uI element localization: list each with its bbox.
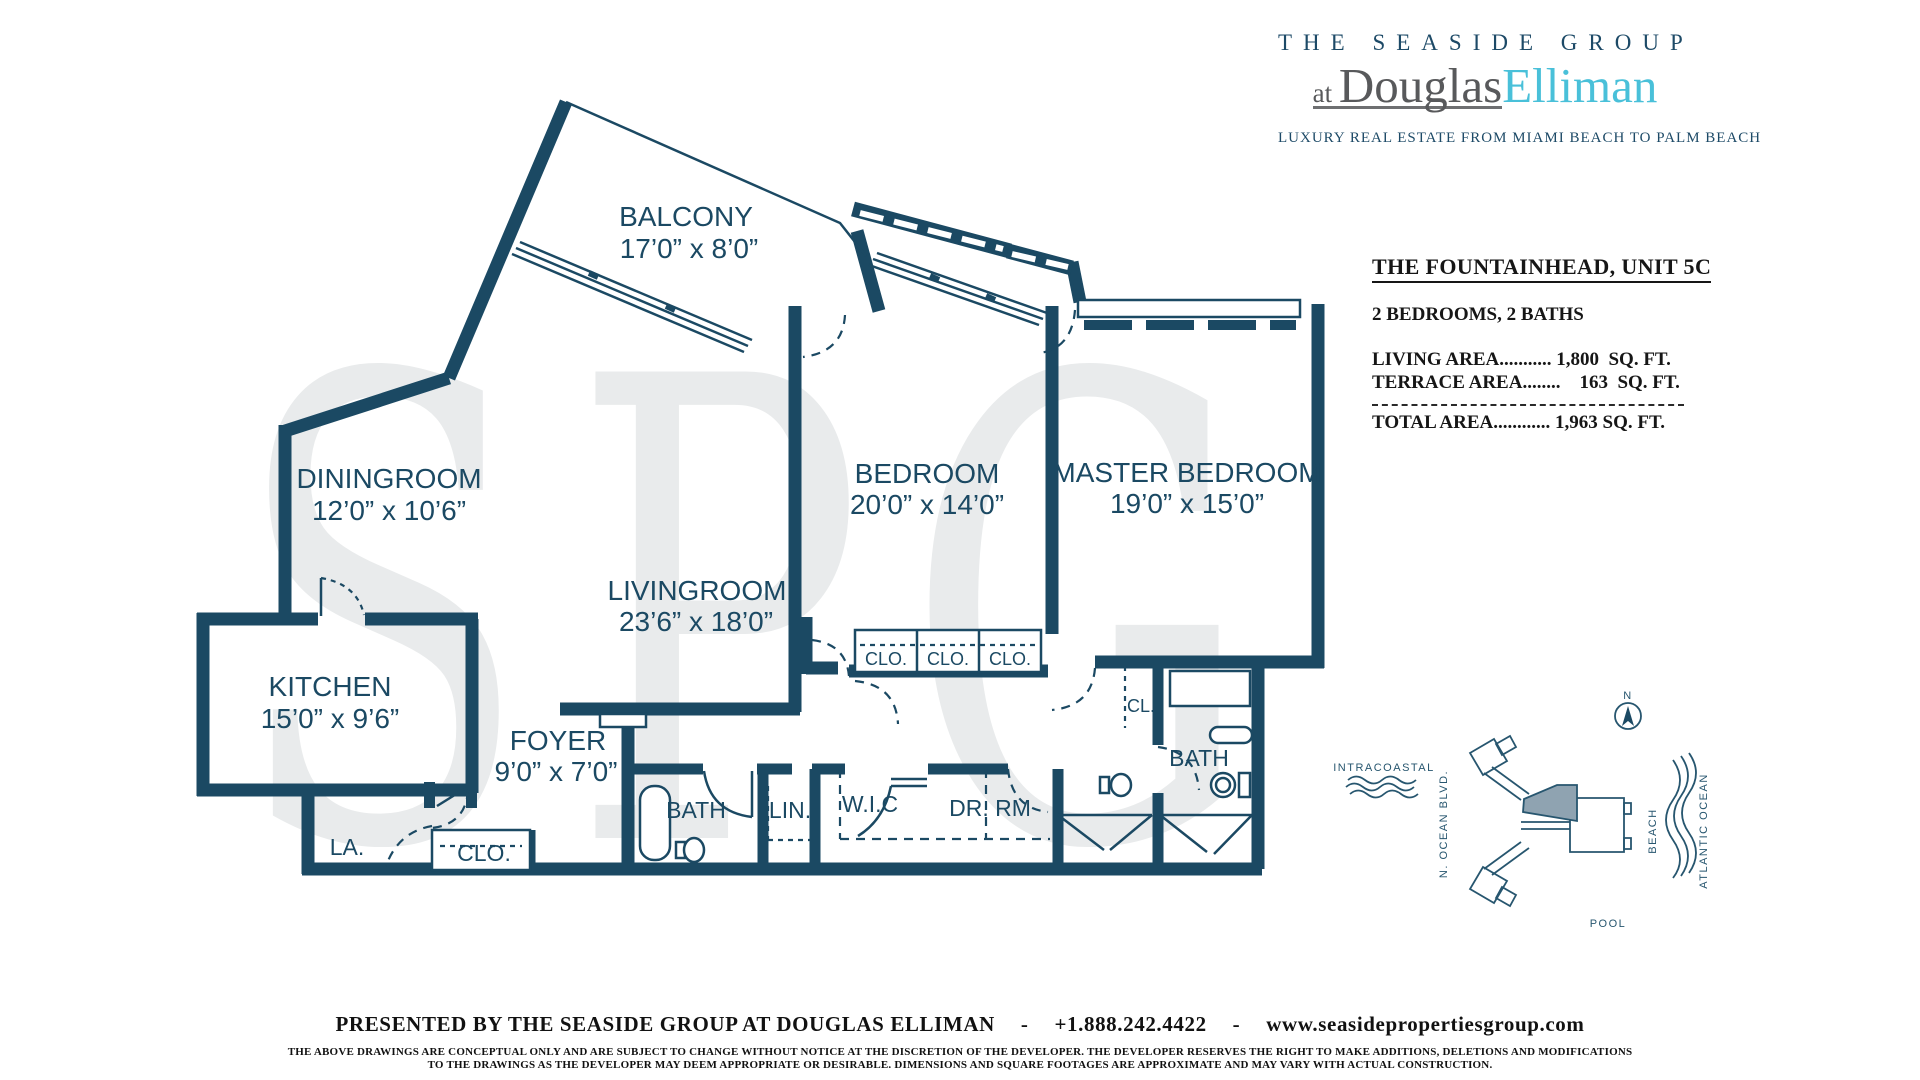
atlantic-ocean-label: ATLANTIC OCEAN (1698, 773, 1710, 889)
toilet-icon (1100, 777, 1109, 793)
highlighted-unit (1523, 785, 1577, 821)
separator: - (1021, 1012, 1029, 1036)
room-label-balcony: BALCONY (619, 201, 753, 232)
label-wic: W.I.C (842, 791, 898, 817)
wordmark-elliman: Elliman (1502, 58, 1657, 113)
terrace-area-line: TERRACE AREA........ 163 SQ. FT. (1372, 371, 1702, 394)
master-window-icon (1078, 300, 1300, 317)
room-label-bedroom: BEDROOM (855, 458, 1000, 489)
intracoastal-label: INTRACOASTAL (1333, 762, 1435, 774)
unit-title: THE FOUNTAINHEAD, UNIT 5C (1372, 254, 1702, 280)
brand-wordmark: at DouglasElliman (1278, 60, 1692, 124)
wordmark-douglas: Douglas (1339, 58, 1502, 113)
sink-icon (1210, 727, 1252, 743)
room-label-diningroom: DININGROOM (296, 463, 481, 494)
brand-tagline: LUXURY REAL ESTATE FROM MIAMI BEACH TO P… (1278, 130, 1692, 147)
shoreline-icon (1666, 760, 1680, 878)
label-clo-foyer: CLO. (457, 840, 511, 866)
unit-subtitle: 2 BEDROOMS, 2 BATHS (1372, 304, 1702, 326)
living-area-line: LIVING AREA........... 1,800 SQ. FT. (1372, 348, 1702, 371)
floor-plan: SPG (0, 0, 1920, 1080)
label-cl: CL. (1127, 696, 1155, 716)
room-label-kitchen: KITCHEN (269, 671, 392, 702)
waves-icon (1348, 777, 1416, 784)
site-map: N INTRACOASTAL N. OCEAN BLVD. BEACH ATLA… (1333, 690, 1710, 930)
room-dims-kitchen: 15’0” x 9’6” (261, 703, 400, 734)
label-clo1: CLO. (865, 649, 907, 669)
unit-info-panel: THE FOUNTAINHEAD, UNIT 5C 2 BEDROOMS, 2 … (1372, 254, 1702, 434)
building-footprint-icon (1470, 736, 1631, 906)
room-dims-balcony: 17’0” x 8’0” (620, 233, 759, 264)
label-clo2: CLO. (927, 649, 969, 669)
room-dims-master-bedroom: 19’0” x 15’0” (1110, 488, 1264, 519)
brand-logo: THE SEASIDE GROUP at DouglasElliman LUXU… (1278, 30, 1692, 147)
room-label-master-bedroom: MASTER BEDROOM (1052, 457, 1321, 488)
presented-by-text: PRESENTED BY THE SEASIDE GROUP AT DOUGLA… (336, 1012, 995, 1036)
disclaimer-line-1: THE ABOVE DRAWINGS ARE CONCEPTUAL ONLY A… (0, 1046, 1920, 1059)
label-bath1: BATH (666, 797, 726, 823)
label-clo3: CLO. (989, 649, 1031, 669)
room-label-foyer: FOYER (510, 725, 606, 756)
beach-label: BEACH (1647, 808, 1659, 853)
pool-label: POOL (1590, 918, 1627, 930)
room-dims-livingroom: 23’6” x 18’0” (619, 606, 773, 637)
north-label: N (1623, 690, 1632, 702)
room-dims-diningroom: 12’0” x 10’6” (312, 495, 466, 526)
label-bath2: BATH (1169, 745, 1229, 771)
disclaimer-line-2: TO THE DRAWINGS AS THE DEVELOPER MAY DEE… (0, 1059, 1920, 1072)
divider (1372, 404, 1684, 406)
room-dims-bedroom: 20’0” x 14’0” (850, 489, 1004, 520)
label-lin: LIN. (769, 797, 811, 823)
toilet-icon (1239, 773, 1250, 797)
total-area-line: TOTAL AREA............ 1,963 SQ. FT. (1372, 411, 1702, 434)
brand-name: THE SEASIDE GROUP (1278, 30, 1692, 56)
label-dr-rm: DR. RM (949, 795, 1031, 821)
n-ocean-blvd-label: N. OCEAN BLVD. (1438, 770, 1450, 878)
footer: PRESENTED BY THE SEASIDE GROUP AT DOUGLA… (0, 1012, 1920, 1072)
footer-contact-line: PRESENTED BY THE SEASIDE GROUP AT DOUGLA… (0, 1012, 1920, 1037)
website-link[interactable]: www.seasidepropertiesgroup.com (1266, 1012, 1584, 1036)
phone-number: +1.888.242.4422 (1054, 1012, 1206, 1036)
entry-jamb-icon (424, 782, 435, 808)
room-label-livingroom: LIVINGROOM (608, 575, 787, 606)
vanity-icon (1170, 671, 1250, 706)
separator: - (1233, 1012, 1241, 1036)
room-dims-foyer: 9’0” x 7’0” (495, 756, 618, 787)
label-la: LA. (330, 834, 365, 860)
wordmark-at: at (1313, 78, 1339, 108)
